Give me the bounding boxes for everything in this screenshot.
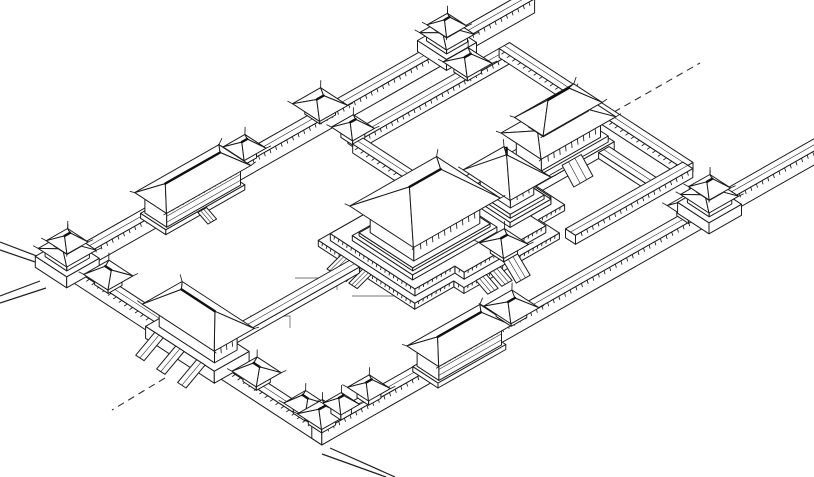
- palace-axonometric-drawing: [0, 0, 814, 477]
- palace-complex-line-art: [0, 0, 814, 477]
